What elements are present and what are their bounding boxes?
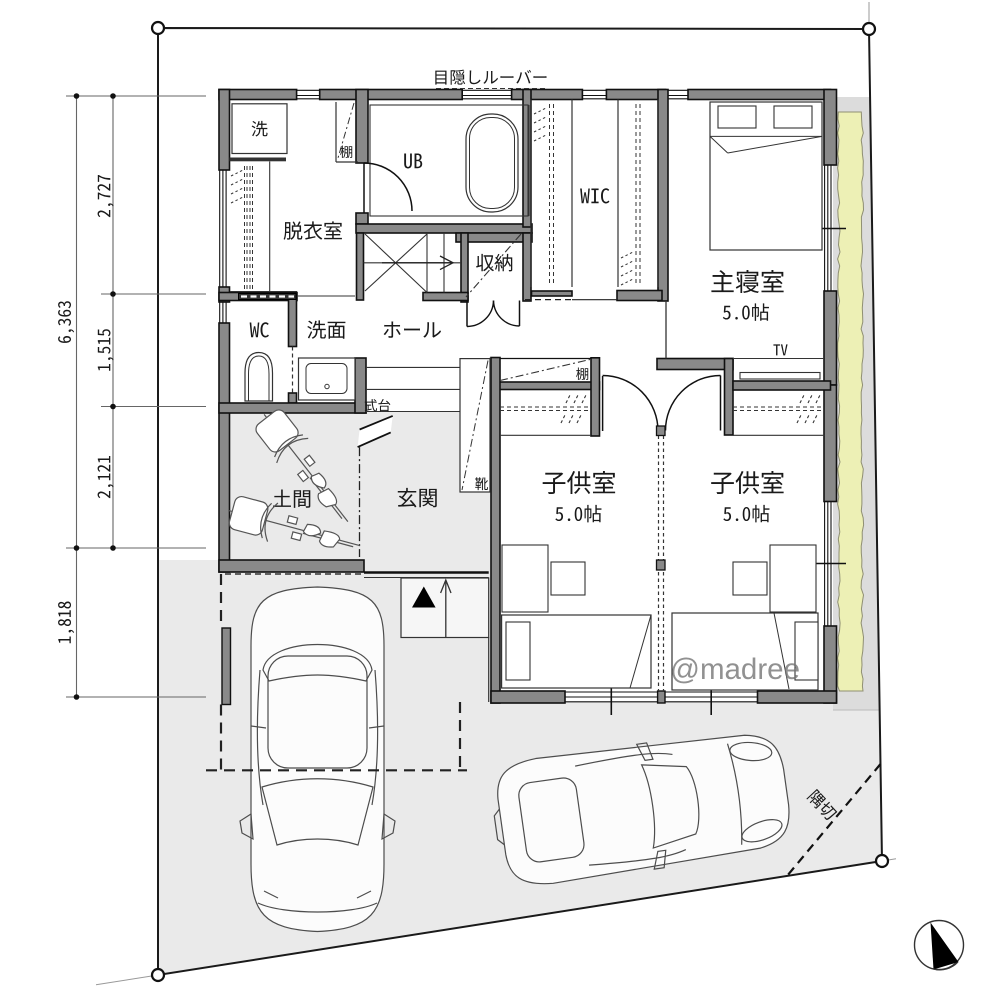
svg-text:@madree: @madree xyxy=(670,653,800,686)
